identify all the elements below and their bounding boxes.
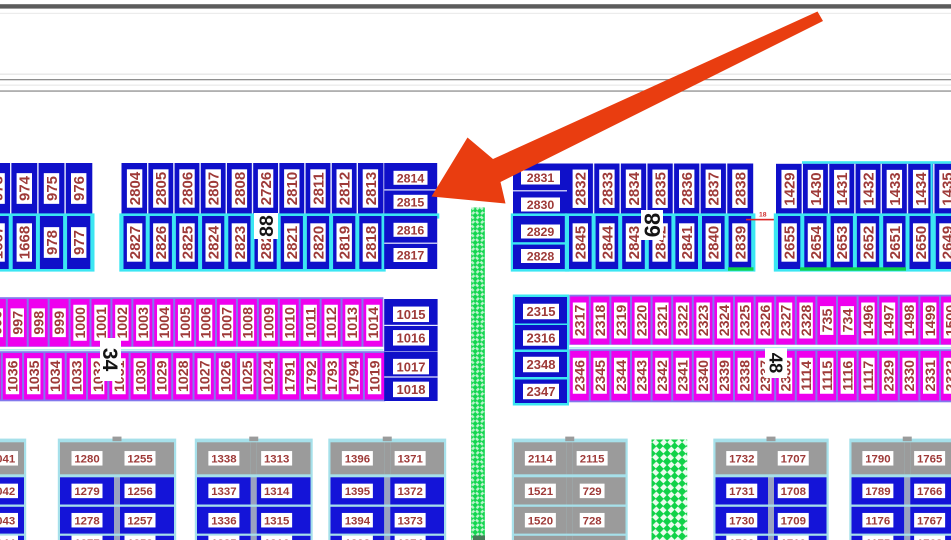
svg-text:2655: 2655 — [782, 226, 799, 259]
svg-text:1005: 1005 — [178, 307, 194, 339]
svg-text:2318: 2318 — [593, 305, 609, 337]
svg-text:2339: 2339 — [717, 360, 733, 392]
svg-text:2649: 2649 — [939, 226, 951, 259]
svg-text:1708: 1708 — [781, 486, 806, 498]
svg-text:1010: 1010 — [282, 307, 298, 339]
svg-text:2833: 2833 — [599, 172, 616, 205]
svg-text:2824: 2824 — [206, 225, 223, 259]
svg-text:1792: 1792 — [304, 360, 320, 392]
svg-text:1315: 1315 — [264, 515, 290, 527]
svg-text:1000: 1000 — [73, 307, 89, 339]
svg-text:998: 998 — [31, 311, 47, 335]
svg-text:1337: 1337 — [211, 486, 236, 498]
svg-text:1257: 1257 — [127, 515, 152, 527]
svg-text:1009: 1009 — [261, 307, 277, 339]
svg-text:2818: 2818 — [363, 226, 380, 259]
svg-text:1794: 1794 — [346, 360, 362, 392]
svg-text:1034: 1034 — [48, 360, 64, 392]
svg-text:1372: 1372 — [397, 486, 422, 498]
svg-text:1667: 1667 — [0, 226, 7, 259]
svg-text:2840: 2840 — [706, 226, 723, 259]
svg-text:2114: 2114 — [528, 453, 553, 465]
svg-text:88: 88 — [256, 215, 278, 237]
svg-text:2815: 2815 — [397, 195, 425, 209]
svg-text:1011: 1011 — [303, 307, 319, 338]
svg-text:1336: 1336 — [211, 515, 236, 527]
svg-text:2816: 2816 — [397, 223, 425, 237]
svg-text:1496: 1496 — [861, 305, 877, 337]
svg-text:2329: 2329 — [882, 360, 898, 392]
svg-text:1025: 1025 — [240, 360, 256, 392]
svg-text:1036: 1036 — [6, 360, 22, 392]
svg-text:2837: 2837 — [706, 172, 723, 205]
svg-text:2845: 2845 — [573, 226, 590, 259]
svg-text:1430: 1430 — [808, 172, 825, 205]
svg-text:2323: 2323 — [696, 305, 712, 337]
svg-text:2814: 2814 — [397, 171, 425, 185]
svg-text:1019: 1019 — [368, 360, 384, 392]
svg-text:2327: 2327 — [779, 305, 795, 337]
svg-text:1030: 1030 — [133, 360, 149, 392]
svg-text:1732: 1732 — [729, 453, 754, 465]
svg-text:1115: 1115 — [820, 361, 836, 391]
svg-text:1279: 1279 — [74, 486, 99, 498]
svg-text:1394: 1394 — [345, 515, 371, 527]
svg-text:735: 735 — [820, 309, 836, 333]
svg-text:2830: 2830 — [527, 198, 555, 212]
svg-text:1116: 1116 — [840, 361, 856, 391]
svg-text:1668: 1668 — [17, 226, 34, 259]
svg-text:2813: 2813 — [363, 172, 380, 205]
svg-text:1043: 1043 — [0, 515, 15, 527]
svg-text:2344: 2344 — [614, 360, 630, 392]
svg-text:1338: 1338 — [211, 453, 236, 465]
svg-text:1026: 1026 — [219, 360, 235, 392]
svg-text:1435: 1435 — [939, 172, 951, 205]
svg-text:1521: 1521 — [528, 486, 554, 498]
svg-text:2325: 2325 — [737, 305, 753, 337]
svg-text:1114: 1114 — [799, 361, 815, 391]
svg-text:1433: 1433 — [887, 172, 904, 205]
svg-text:2315: 2315 — [527, 304, 556, 319]
svg-text:2826: 2826 — [153, 226, 170, 259]
svg-text:2345: 2345 — [593, 360, 609, 392]
svg-text:1015: 1015 — [397, 307, 426, 322]
svg-text:1018: 1018 — [397, 382, 426, 397]
svg-text:2322: 2322 — [676, 305, 692, 337]
svg-text:1498: 1498 — [902, 305, 918, 337]
svg-text:48: 48 — [765, 353, 786, 374]
svg-text:2332: 2332 — [943, 360, 951, 392]
svg-text:1731: 1731 — [729, 486, 755, 498]
svg-text:1117: 1117 — [861, 361, 877, 391]
svg-text:34: 34 — [98, 348, 121, 372]
svg-text:1499: 1499 — [923, 305, 939, 337]
svg-text:2652: 2652 — [860, 226, 877, 259]
svg-text:2810: 2810 — [284, 172, 301, 205]
svg-text:2805: 2805 — [153, 172, 170, 205]
svg-text:2330: 2330 — [902, 360, 918, 392]
svg-text:1255: 1255 — [127, 453, 153, 465]
svg-text:2804: 2804 — [127, 171, 144, 205]
svg-text:1008: 1008 — [241, 307, 257, 339]
svg-text:2827: 2827 — [127, 226, 144, 259]
svg-text:1014: 1014 — [366, 307, 382, 339]
svg-text:974: 974 — [17, 175, 34, 201]
svg-text:1002: 1002 — [115, 307, 131, 339]
svg-text:1789: 1789 — [865, 486, 890, 498]
svg-text:2823: 2823 — [232, 226, 249, 259]
svg-text:1791: 1791 — [282, 360, 298, 392]
svg-text:977: 977 — [71, 230, 88, 255]
svg-text:2838: 2838 — [732, 172, 749, 205]
svg-text:2321: 2321 — [655, 305, 671, 337]
svg-text:1012: 1012 — [324, 307, 340, 339]
svg-text:2825: 2825 — [179, 226, 196, 259]
svg-text:2828: 2828 — [527, 249, 555, 263]
svg-text:2348: 2348 — [527, 357, 556, 372]
svg-text:999: 999 — [52, 311, 68, 335]
svg-text:1003: 1003 — [136, 307, 152, 339]
svg-text:1280: 1280 — [74, 453, 99, 465]
svg-text:997: 997 — [10, 311, 26, 335]
svg-text:1431: 1431 — [834, 172, 851, 205]
svg-text:1396: 1396 — [345, 453, 370, 465]
svg-text:1033: 1033 — [69, 360, 85, 392]
svg-text:1432: 1432 — [860, 172, 877, 205]
svg-text:2342: 2342 — [655, 360, 671, 392]
svg-text:2326: 2326 — [758, 305, 774, 337]
svg-text:728: 728 — [583, 515, 602, 527]
svg-text:1766: 1766 — [917, 486, 942, 498]
svg-text:1434: 1434 — [913, 172, 930, 206]
svg-text:2808: 2808 — [232, 172, 249, 205]
svg-text:2839: 2839 — [732, 226, 749, 259]
svg-text:2331: 2331 — [923, 360, 939, 392]
svg-text:2115: 2115 — [580, 453, 605, 465]
svg-text:1313: 1313 — [264, 453, 289, 465]
svg-text:2317: 2317 — [573, 305, 589, 337]
svg-text:1041: 1041 — [0, 453, 16, 465]
svg-text:1278: 1278 — [74, 515, 99, 527]
svg-text:1006: 1006 — [199, 307, 215, 339]
svg-text:1497: 1497 — [882, 305, 898, 337]
svg-text:1004: 1004 — [157, 307, 173, 339]
svg-text:1373: 1373 — [397, 515, 422, 527]
svg-text:2347: 2347 — [527, 384, 556, 399]
svg-text:1395: 1395 — [345, 486, 371, 498]
svg-text:1314: 1314 — [264, 486, 290, 498]
svg-text:2841: 2841 — [679, 226, 696, 259]
svg-text:1042: 1042 — [0, 486, 15, 498]
svg-text:18: 18 — [759, 212, 767, 219]
svg-text:2343: 2343 — [634, 360, 650, 392]
svg-text:2338: 2338 — [737, 360, 753, 392]
svg-text:1007: 1007 — [220, 307, 236, 339]
svg-text:2650: 2650 — [913, 226, 930, 259]
svg-text:2812: 2812 — [337, 172, 354, 205]
svg-text:1500: 1500 — [943, 305, 951, 337]
svg-text:973: 973 — [0, 176, 7, 201]
svg-text:1027: 1027 — [197, 360, 213, 392]
svg-text:1256: 1256 — [127, 486, 152, 498]
svg-text:1017: 1017 — [397, 359, 426, 374]
svg-text:2835: 2835 — [653, 172, 670, 205]
svg-text:2811: 2811 — [310, 172, 327, 205]
svg-text:2820: 2820 — [310, 226, 327, 259]
svg-text:2726: 2726 — [258, 172, 275, 205]
svg-text:1028: 1028 — [176, 360, 192, 392]
svg-text:2654: 2654 — [808, 225, 825, 259]
svg-text:2341: 2341 — [676, 360, 692, 392]
svg-text:2316: 2316 — [527, 331, 556, 346]
svg-text:2832: 2832 — [573, 172, 590, 205]
svg-text:2817: 2817 — [397, 248, 425, 262]
svg-text:1707: 1707 — [781, 453, 806, 465]
svg-text:2834: 2834 — [626, 171, 643, 205]
svg-text:2807: 2807 — [206, 172, 223, 205]
svg-text:1013: 1013 — [345, 307, 361, 339]
svg-text:1176: 1176 — [866, 515, 891, 527]
svg-text:1790: 1790 — [865, 453, 890, 465]
svg-text:2831: 2831 — [527, 171, 555, 185]
svg-text:2651: 2651 — [887, 226, 904, 259]
svg-text:1029: 1029 — [155, 360, 171, 392]
svg-text:2328: 2328 — [799, 305, 815, 337]
svg-text:1765: 1765 — [917, 453, 943, 465]
svg-text:1709: 1709 — [781, 515, 806, 527]
svg-text:1429: 1429 — [782, 172, 799, 205]
svg-text:1793: 1793 — [325, 360, 341, 392]
svg-text:2346: 2346 — [573, 360, 589, 392]
svg-text:2653: 2653 — [834, 226, 851, 259]
svg-text:978: 978 — [44, 230, 61, 255]
svg-text:729: 729 — [583, 486, 602, 498]
svg-text:2319: 2319 — [614, 305, 630, 337]
svg-text:996: 996 — [0, 311, 5, 335]
svg-text:2836: 2836 — [679, 172, 696, 205]
svg-text:1730: 1730 — [729, 515, 754, 527]
svg-text:1016: 1016 — [397, 330, 426, 345]
svg-text:2320: 2320 — [634, 305, 650, 337]
svg-text:1035: 1035 — [27, 360, 43, 392]
svg-text:1001: 1001 — [94, 307, 110, 339]
svg-text:2821: 2821 — [284, 226, 301, 259]
svg-text:2324: 2324 — [717, 305, 733, 337]
svg-text:2340: 2340 — [696, 360, 712, 392]
svg-text:734: 734 — [840, 309, 856, 333]
svg-text:1767: 1767 — [917, 515, 942, 527]
svg-text:975: 975 — [44, 176, 61, 201]
svg-text:68: 68 — [640, 213, 665, 237]
svg-text:1520: 1520 — [528, 515, 553, 527]
svg-text:976: 976 — [71, 176, 88, 201]
svg-text:1024: 1024 — [261, 360, 277, 392]
svg-text:2806: 2806 — [179, 172, 196, 205]
svg-text:2829: 2829 — [527, 225, 555, 239]
svg-text:1371: 1371 — [397, 453, 423, 465]
svg-text:2819: 2819 — [337, 226, 354, 259]
svg-text:2844: 2844 — [599, 225, 616, 259]
